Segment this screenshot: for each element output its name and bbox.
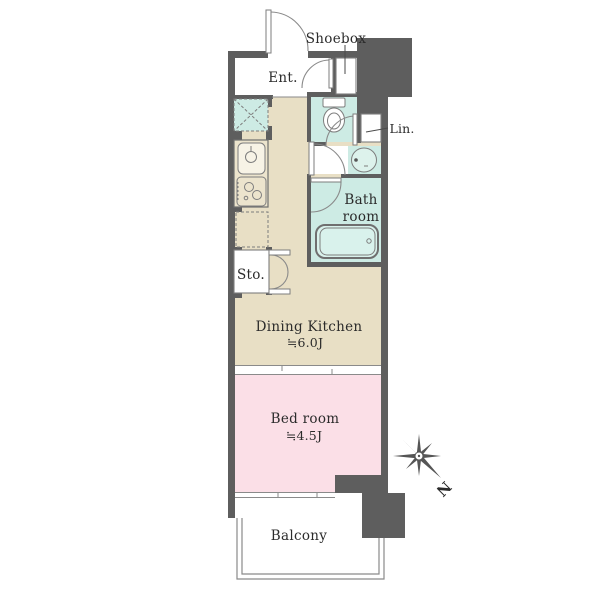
bathroom-door-leaf [311,178,341,182]
storage-label: Sto. [237,267,265,283]
storage-door-leaf-bottom [269,289,290,294]
entrance-door-leaf [266,10,271,53]
bathroom-label-line1: Bath [344,192,377,208]
storage-door-leaf-top [269,250,290,255]
bedroom-balcony-window [235,492,335,498]
linen-label: Lin. [389,121,414,136]
bedroom-size: ≒4.5J [286,428,322,443]
floor-plan-page: N Shoebox Ent. Lin. Bath room Sto. Dinin… [0,0,600,600]
dining-kitchen-size: ≒6.0J [287,335,323,350]
dining-kitchen-label: Dining Kitchen [256,319,363,335]
toilet-door-leaf [353,114,357,145]
bedroom-label: Bed room [271,411,340,427]
shoebox-label: Shoebox [306,31,367,47]
washroom-floor [311,146,348,174]
entrance-label: Ent. [268,70,297,86]
balcony-label: Balcony [271,528,327,544]
dk-bedroom-partition [235,365,381,375]
stove-icon [237,177,266,206]
floor-plan-drawing: N Shoebox Ent. Lin. Bath room Sto. Dinin… [0,0,600,600]
toilet-icon [323,98,345,132]
hall-door-leaf [329,59,333,88]
linen-closet [361,114,381,142]
bathroom-label-line2: room [343,209,380,225]
washroom-door-leaf [309,142,314,175]
wash-basin-icon [352,148,377,172]
bathtub-icon [316,225,378,258]
shoebox-closet [336,58,356,94]
